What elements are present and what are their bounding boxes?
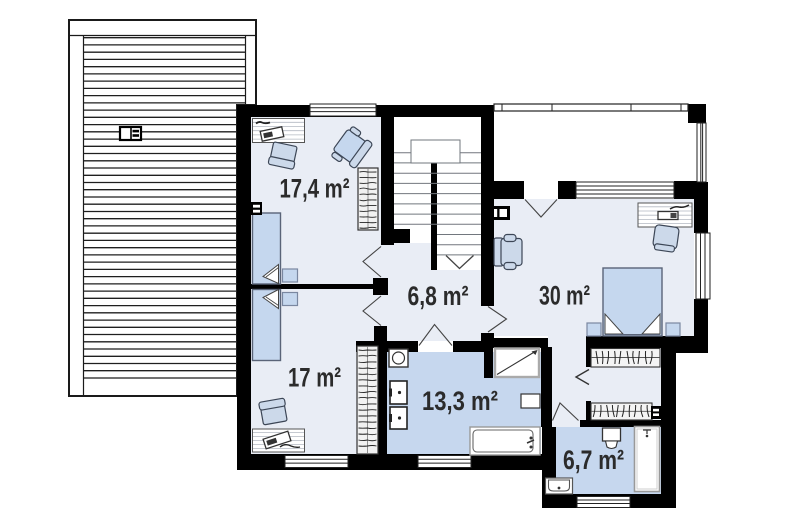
svg-text:13,3 m²: 13,3 m²	[422, 386, 498, 416]
svg-text:17 m²: 17 m²	[288, 363, 341, 393]
svg-text:17,4 m²: 17,4 m²	[280, 173, 350, 203]
svg-text:6,8 m²: 6,8 m²	[408, 281, 469, 311]
svg-text:6,7 m²: 6,7 m²	[563, 445, 624, 475]
svg-text:30 m²: 30 m²	[539, 281, 590, 311]
